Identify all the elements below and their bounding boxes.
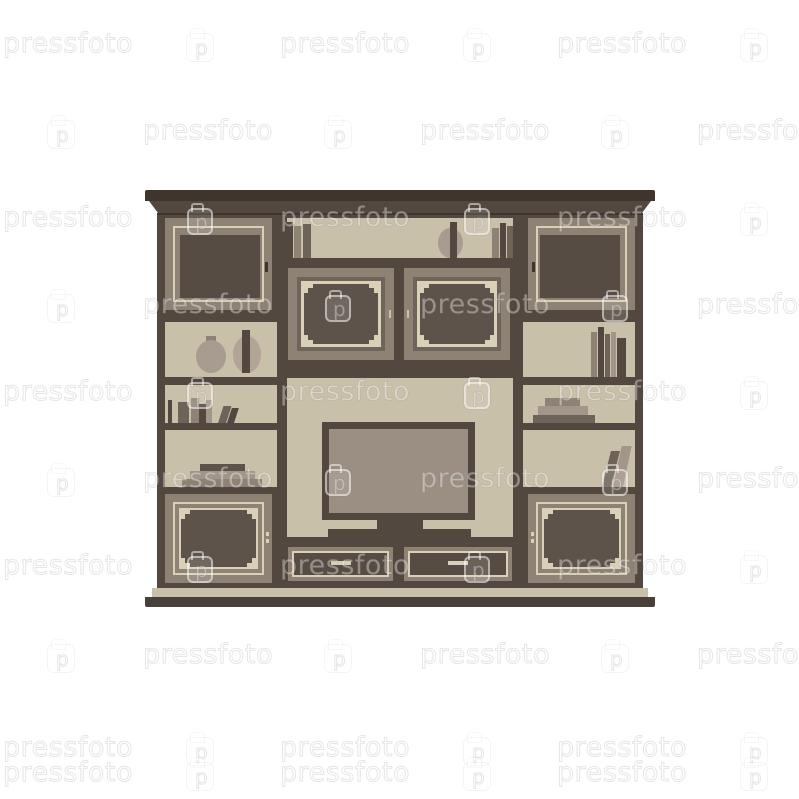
tv [322,422,475,520]
watermark-logo-letter: p [472,766,485,788]
book-spine [617,338,626,377]
book-spine [500,223,506,258]
watermark-logo-letter: p [56,648,69,670]
left-door-glass-window [180,235,260,298]
book-spine [199,404,206,423]
watermark-logo-letter: p [195,37,208,59]
watermark-logo-letter: p [749,211,762,233]
book-spine [492,228,499,258]
watermark-text: pressfoto [3,378,133,405]
watermark-logo-icon: p [187,738,213,765]
base-bar [145,597,655,607]
tv-screen [329,429,468,513]
left-bottom-cabinet [165,494,272,583]
tv-alcove [287,378,513,537]
cornice-top [145,190,655,201]
left-shelf-book-stack [165,430,277,487]
watermark-logo-letter: p [749,385,762,407]
right-door-glass-window [540,235,620,298]
book-spine [605,334,610,377]
stacked-book [190,471,255,479]
round-vase [196,340,226,373]
watermark-text: pressfoto [557,734,687,761]
left-glass-door-cabinet [165,218,272,310]
book-spine [591,332,597,377]
watermark-text: pressfoto [280,759,410,786]
tv-stand-neck [377,520,423,529]
notched-door-panel [420,284,494,344]
drawer-left-handle [331,561,351,565]
stacked-book [545,398,580,406]
watermark-logo-icon: p [602,121,628,148]
watermark-logo-icon: p [741,738,767,765]
watermark-logo-icon: p [325,121,351,148]
book-spine [294,226,301,258]
watermark-logo-icon: p [464,763,490,790]
right-door-handle [532,262,535,272]
book-spine [611,332,616,377]
watermark-logo-icon: p [741,382,767,409]
watermark-logo-letter: p [333,124,346,146]
book-spine [168,400,172,423]
watermark-logo-letter: p [749,559,762,581]
stacked-book [200,464,245,471]
stock-image-canvas: pressfotopressfotopressfotoppppressfotop… [0,0,799,799]
book-spine [206,400,212,423]
notched-door-panel [304,284,378,344]
center-cabinet-right [404,268,510,360]
watermark-logo-letter: p [56,298,69,320]
striped-vase-neck [242,330,250,373]
watermark-text: pressfoto [697,117,799,144]
watermark-logo-letter: p [56,124,69,146]
drawer-left [288,547,393,581]
watermark-logo-icon: p [48,121,74,148]
right-bottom-cabinet [528,494,635,583]
left-shelf-books [165,385,277,423]
watermark-logo-icon: p [48,469,74,496]
watermark-text: pressfoto [143,117,273,144]
watermark-text: pressfoto [280,734,410,761]
right-bottom-cabinet-handle [531,532,534,536]
watermark-logo-icon: p [741,34,767,61]
watermark-logo-icon: p [602,645,628,672]
watermark-logo-icon: p [464,34,490,61]
notched-door-panel [544,510,619,567]
tv-stand-base [328,529,471,537]
center-cabinet-left [288,268,394,360]
watermark-logo-icon: p [187,763,213,790]
watermark-text: pressfoto [3,759,133,786]
watermark-text: pressfoto [280,30,410,57]
watermark-logo-letter: p [749,741,762,763]
drawer-right-handle [448,561,468,565]
wall-unit-illustration [145,190,655,607]
right-shelf-books [523,322,635,377]
watermark-logo-letter: p [195,741,208,763]
right-glass-door-cabinet [528,218,635,310]
center-top-shelf [287,218,513,258]
watermark-logo-icon: p [464,738,490,765]
stacked-book [182,479,262,487]
cabinet-body [157,215,643,588]
watermark-logo-letter: p [56,472,69,494]
book-spine [191,398,199,423]
left-bottom-cabinet-handle [266,532,269,536]
watermark-text: pressfoto [143,641,273,668]
center-cabinet-left-handle [389,310,391,318]
stacked-book [538,406,588,415]
right-shelf-book-stack [523,385,635,423]
watermark-logo-letter: p [749,37,762,59]
watermark-text: pressfoto [3,204,133,231]
watermark-logo-letter: p [610,648,623,670]
watermark-text: pressfoto [420,117,550,144]
watermark-text: pressfoto [697,641,799,668]
watermark-logo-letter: p [749,766,762,788]
watermark-logo-letter: p [333,648,346,670]
watermark-text: pressfoto [697,291,799,318]
book-spine [303,224,311,258]
left-shelf-vases [165,322,277,377]
watermark-logo-icon: p [325,645,351,672]
center-cabinet-right-handle [407,310,409,318]
book-spine [178,402,189,423]
watermark-text: pressfoto [697,465,799,492]
watermark-logo-icon: p [48,295,74,322]
watermark-logo-letter: p [610,124,623,146]
watermark-text: pressfoto [420,641,550,668]
watermark-logo-letter: p [472,37,485,59]
watermark-logo-letter: p [472,741,485,763]
watermark-logo-icon: p [741,208,767,235]
plinth [152,588,648,597]
stacked-book [533,415,595,423]
right-shelf-leaning-books [523,430,635,487]
notched-door-panel [181,510,256,567]
book-spine [287,222,293,258]
watermark-text: pressfoto [3,734,133,761]
book-spine [598,327,604,377]
watermark-text: pressfoto [3,30,133,57]
watermark-logo-icon: p [187,34,213,61]
watermark-logo-icon: p [741,763,767,790]
decor-vase-neck [450,222,457,258]
watermark-logo-letter: p [195,766,208,788]
watermark-text: pressfoto [557,30,687,57]
left-door-handle [265,262,268,272]
book-spine [507,226,513,258]
watermark-text: pressfoto [3,552,133,579]
cornice-molding [149,201,651,213]
watermark-logo-icon: p [48,645,74,672]
watermark-text: pressfoto [557,759,687,786]
drawer-right [404,547,512,581]
watermark-logo-icon: p [741,556,767,583]
